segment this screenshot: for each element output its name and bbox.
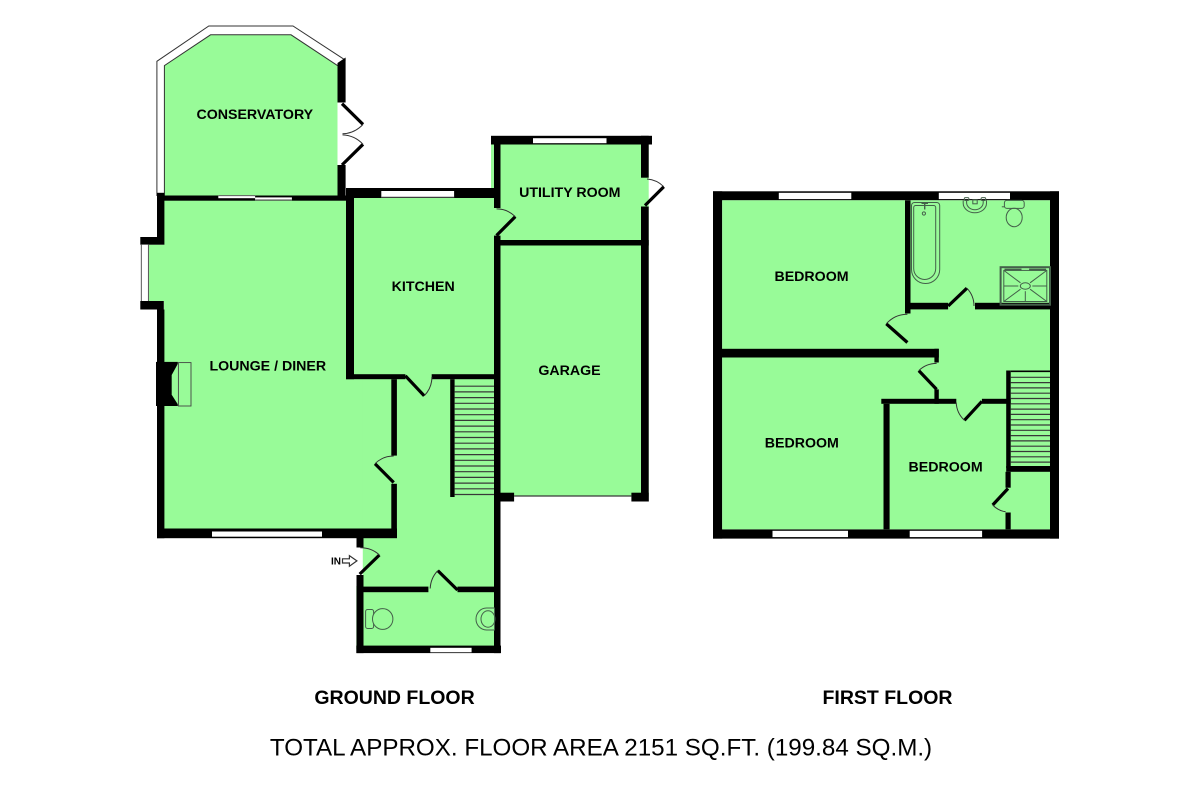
svg-text:IN: IN xyxy=(331,557,341,568)
svg-text:GROUND FLOOR: GROUND FLOOR xyxy=(314,687,474,709)
svg-text:GARAGE: GARAGE xyxy=(538,363,600,379)
svg-text:LOUNGE / DINER: LOUNGE / DINER xyxy=(209,359,326,375)
svg-text:FIRST FLOOR: FIRST FLOOR xyxy=(823,687,953,709)
svg-text:BEDROOM: BEDROOM xyxy=(774,269,848,285)
svg-text:BEDROOM: BEDROOM xyxy=(765,436,839,452)
svg-text:KITCHEN: KITCHEN xyxy=(392,279,455,295)
svg-text:CONSERVATORY: CONSERVATORY xyxy=(196,107,313,123)
svg-text:BEDROOM: BEDROOM xyxy=(909,460,983,476)
svg-text:UTILITY ROOM: UTILITY ROOM xyxy=(519,185,620,201)
svg-text:TOTAL APPROX. FLOOR AREA 2151: TOTAL APPROX. FLOOR AREA 2151 SQ.FT. (19… xyxy=(270,735,932,762)
